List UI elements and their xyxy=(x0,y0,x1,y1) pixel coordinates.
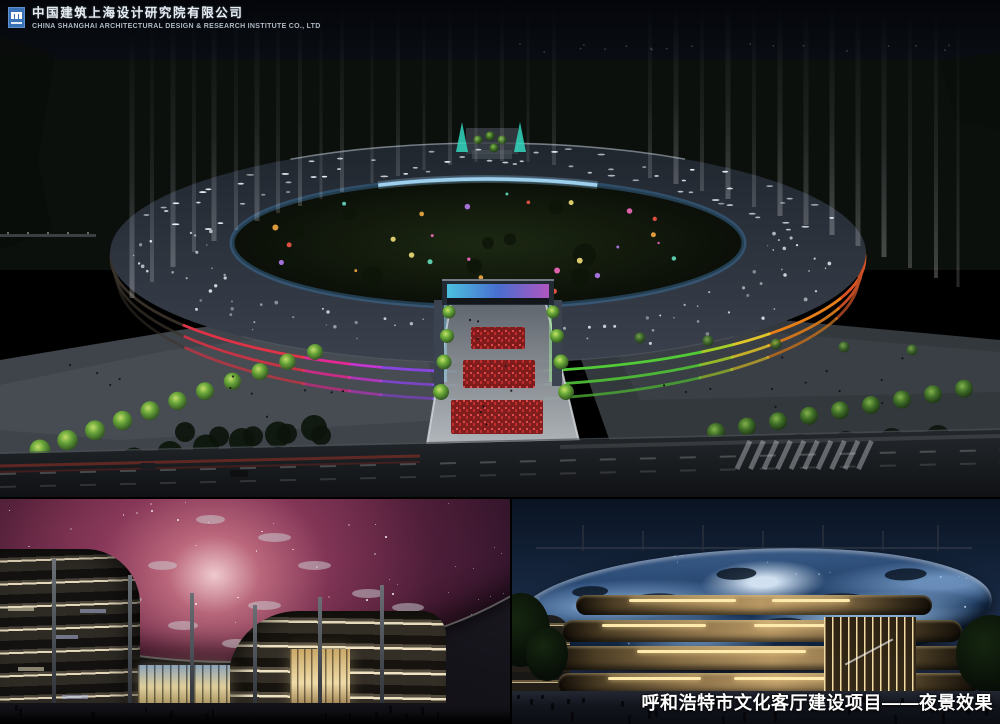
foreground-shadow xyxy=(0,712,510,724)
logo-subbar xyxy=(11,22,22,24)
company-name-en: CHINA SHANGHAI ARCHITECTURAL DESIGN & RE… xyxy=(32,23,321,30)
logo-emblem-icon xyxy=(11,12,22,21)
photo-entrance-canopy-night xyxy=(0,499,510,724)
photo-starry-canopy-night: 呼和浩特市文化客厅建设项目——夜景效果 xyxy=(512,499,1000,724)
company-name-cn: 中国建筑上海设计研究院有限公司 xyxy=(32,7,321,21)
caption-title: 呼和浩特市文化客厅建设项目——夜景效果 xyxy=(642,689,994,715)
entrance-plaza xyxy=(424,279,584,462)
company-name-block: 中国建筑上海设计研究院有限公司 CHINA SHANGHAI ARCHITECT… xyxy=(32,7,321,30)
aerial-night-rendering xyxy=(0,0,1000,497)
presentation-board: 中国建筑上海设计研究院有限公司 CHINA SHANGHAI ARCHITECT… xyxy=(0,0,1000,724)
company-logo-icon xyxy=(8,7,25,28)
company-brand: 中国建筑上海设计研究院有限公司 CHINA SHANGHAI ARCHITECT… xyxy=(8,7,321,30)
pedestrians xyxy=(0,499,510,724)
